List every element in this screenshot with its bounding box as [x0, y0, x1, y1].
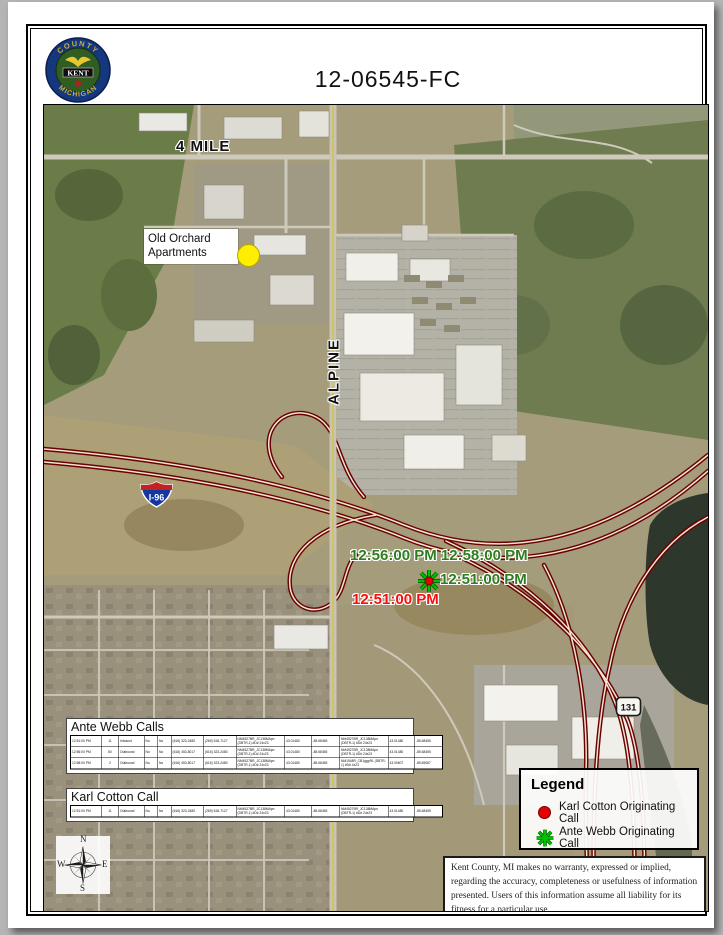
- table-cell: 43.01480: [388, 806, 415, 818]
- time-label-1256: 12:56:00 PM 12:58:00 PM: [350, 547, 528, 564]
- table-cell: (616) 323-2480: [171, 806, 204, 818]
- table-cell: 43.01480: [285, 758, 312, 769]
- time-label-1251-green: 12:51:00 PM: [440, 571, 527, 588]
- table-cell: 12:51:00 PM: [71, 806, 102, 818]
- disclaimer-text: Kent County, MI makes no warranty, expre…: [443, 856, 706, 912]
- table-cell: NM4527BR_JC138MApn (DBTR-1) #D# 24x23: [340, 747, 389, 758]
- table-row: 12:56:00 PM60OutboundNoNo(616) 453-8017(…: [71, 747, 443, 758]
- table-cell: No: [144, 758, 158, 769]
- table-cell: (616) 453-8017: [171, 747, 204, 758]
- us131-shield-icon: 131: [615, 696, 642, 717]
- page-title: 12-06545-FC: [148, 66, 628, 93]
- table-cell: NM4527BR_JC138MApn (DBTR-1) #D# 24x23: [340, 736, 389, 747]
- table-cell: 12:56:00 PM: [71, 747, 102, 758]
- table-cell: No: [158, 747, 172, 758]
- table-cell: NM4527BR_JC138MApn (DBTR-1) #D# 24x23: [236, 747, 285, 758]
- legend-title: Legend: [531, 776, 689, 793]
- table-cell: -85.68455: [415, 806, 443, 818]
- table-cell: -85.68455: [311, 806, 340, 818]
- table-cell: Outbound: [119, 806, 145, 818]
- table-cell: 11: [101, 736, 119, 747]
- table-cell: -85.68455: [415, 736, 443, 747]
- scanned-page-background: COUNTY MICHIGAN KENT 12-06545-FC: [0, 0, 723, 935]
- table-row: 12:51:00 PM11InboundNoNo(616) 323-2480(2…: [71, 736, 443, 747]
- table-cell: Inbound: [119, 736, 145, 747]
- karl-cotton-call-table: Karl Cotton Call 12:51:00 PM11OutboundNo…: [66, 788, 414, 822]
- old-orchard-apartments-label: Old Orchard Apartments: [144, 229, 238, 264]
- table-cell: 43.01480: [388, 736, 415, 747]
- compass-e: E: [102, 859, 108, 869]
- legend-item-ante-webb: Ante Webb Originating Call: [531, 825, 689, 850]
- table-cell: 12:58:00 PM: [71, 758, 102, 769]
- road-label-alpine: ALPINE: [326, 326, 343, 418]
- table-cell: No: [158, 736, 172, 747]
- us131-shield-text: 131: [621, 703, 638, 714]
- table-row: 12:58:00 PM2OutboundNoNo(616) 453-8017(6…: [71, 758, 443, 769]
- legend-item-karl-cotton: Karl Cotton Originating Call: [531, 800, 689, 825]
- table-cell: 43.01480: [285, 747, 312, 758]
- road-label-4-mile: 4 MILE: [176, 138, 230, 155]
- ante-webb-calls-table: Ante Webb Calls 12:51:00 PM11InboundNoNo…: [66, 718, 414, 774]
- i96-shield-text: I-96: [149, 493, 165, 503]
- table-cell: (616) 323-2480: [171, 736, 204, 747]
- karl-cotton-table-grid: 12:51:00 PM11OutboundNoNo(616) 323-2480(…: [70, 805, 443, 818]
- table-cell: No: [144, 747, 158, 758]
- table-cell: (269) 518-7127: [204, 736, 237, 747]
- table-cell: No: [158, 758, 172, 769]
- table-cell: NM4527BR_JC138MApn (DBTR-1) #D# 24x23: [236, 806, 285, 818]
- table-cell: NM4527BR_JC138MApn (DBTR-1) #D# 24x23: [340, 806, 389, 818]
- table-cell: No: [144, 806, 158, 818]
- time-1256-text: 12:56:00 PM: [350, 547, 437, 564]
- karl-cotton-call-marker-icon: [425, 577, 433, 585]
- page-frame: COUNTY MICHIGAN KENT 12-06545-FC: [26, 24, 707, 916]
- table-cell: (616) 453-8017: [171, 758, 204, 769]
- ante-webb-table-grid: 12:51:00 PM11InboundNoNo(616) 323-2480(2…: [70, 735, 443, 770]
- table-cell: 2: [101, 758, 119, 769]
- table-cell: NM1548R_CB1ggpRL (DBTR-1) #D# 4x23: [340, 758, 389, 769]
- legend-green-star-icon: [531, 828, 559, 848]
- kent-county-seal-icon: COUNTY MICHIGAN KENT: [45, 37, 111, 103]
- table-cell: (616) 323-2480: [204, 758, 237, 769]
- table-cell: Outbound: [119, 747, 145, 758]
- table-cell: 43.01480: [285, 736, 312, 747]
- i96-shield-icon: I-96: [140, 481, 173, 508]
- table-cell: 43.01480: [285, 806, 312, 818]
- compass-s: S: [80, 883, 85, 893]
- seal-kent-text: KENT: [67, 68, 88, 77]
- compass-w: W: [57, 859, 66, 869]
- legend-label-karl: Karl Cotton Originating Call: [559, 801, 689, 825]
- legend: Legend Karl Cotton Originating Call: [519, 768, 699, 850]
- ante-webb-call-marker-icon: [416, 568, 442, 594]
- table-row: 12:51:00 PM11OutboundNoNo(616) 323-2480(…: [71, 806, 443, 818]
- table-cell: 43.01480: [388, 747, 415, 758]
- karl-cotton-table-title: Karl Cotton Call: [70, 790, 411, 805]
- table-cell: 60: [101, 747, 119, 758]
- legend-label-ante: Ante Webb Originating Call: [559, 826, 689, 850]
- yellow-dot-marker: [237, 244, 260, 267]
- table-cell: NM4527BR_JC138MApn (DBTR-1) #D# 24x23: [236, 758, 285, 769]
- ante-webb-table-title: Ante Webb Calls: [70, 720, 411, 735]
- table-cell: 11: [101, 806, 119, 818]
- legend-red-circle-icon: [531, 806, 559, 819]
- table-cell: 43.00607: [388, 758, 415, 769]
- table-cell: NM4527BR_JC138MApn (DBTR-1) #D# 24x23: [236, 736, 285, 747]
- old-orchard-line1: Old Orchard: [148, 232, 234, 246]
- old-orchard-line2: Apartments: [148, 246, 234, 260]
- table-cell: -85.69087: [415, 758, 443, 769]
- table-cell: -85.68455: [311, 747, 340, 758]
- table-cell: 12:51:00 PM: [71, 736, 102, 747]
- table-cell: -85.68455: [311, 736, 340, 747]
- compass-n: N: [80, 834, 87, 844]
- table-cell: (269) 518-7127: [204, 806, 237, 818]
- aerial-map: 4 MILE ALPINE Old Orchard Apartments I-9…: [43, 104, 709, 912]
- document-page: COUNTY MICHIGAN KENT 12-06545-FC: [8, 2, 714, 928]
- table-cell: -85.68455: [311, 758, 340, 769]
- table-cell: -85.68455: [415, 747, 443, 758]
- seal-ornament: [75, 80, 81, 86]
- table-cell: (616) 323-2480: [204, 747, 237, 758]
- compass-rose: N E S W: [56, 836, 110, 894]
- table-cell: No: [158, 806, 172, 818]
- time-1258-text: 12:58:00 PM: [441, 547, 528, 564]
- table-cell: No: [144, 736, 158, 747]
- table-cell: Outbound: [119, 758, 145, 769]
